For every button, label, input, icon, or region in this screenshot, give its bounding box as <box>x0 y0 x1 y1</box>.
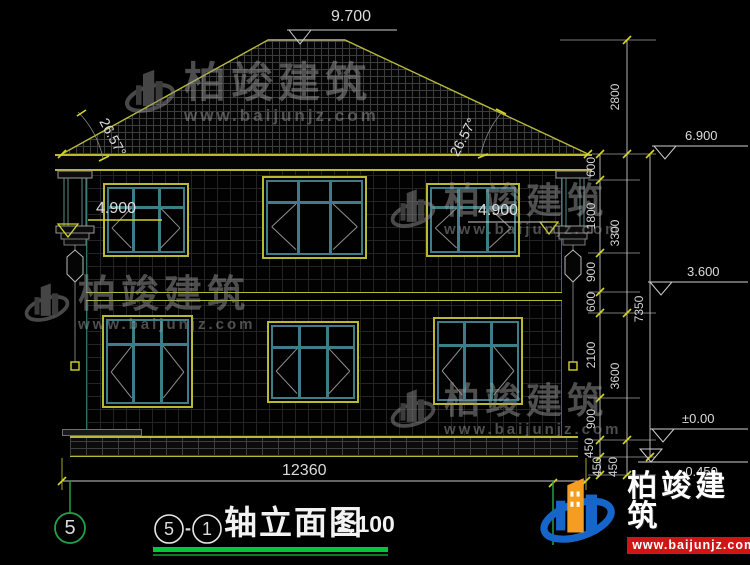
dim-lower-window: 2100 <box>585 342 597 369</box>
watermark-brand: 柏竣建筑 <box>184 62 379 104</box>
watermark-url: www.baijunjz.com <box>78 317 255 332</box>
dim-lower-lintel: 600 <box>585 292 597 312</box>
dim-eave-band: 600 <box>585 157 597 177</box>
brand-logo-icon <box>22 274 72 334</box>
watermark: 柏竣建筑 www.baijunjz.com <box>22 274 255 334</box>
dim-upper-window: 1800 <box>585 203 597 230</box>
brand-logo-icon <box>388 380 438 440</box>
dim-roof-height: 2800 <box>609 84 621 111</box>
dim-total-width: 12360 <box>282 463 327 479</box>
watermark-url: www.baijunjz.com <box>184 107 379 124</box>
level-ridge: 9.700 <box>331 9 371 25</box>
title-scale: 1:100 <box>336 513 395 536</box>
brand-logo-icon <box>536 473 619 553</box>
title-underline <box>153 547 388 552</box>
title-axis-start: 5 <box>164 520 174 538</box>
level-marker-ridge <box>287 30 397 44</box>
dim-second-storey: 3300 <box>609 220 621 247</box>
pendant-ornament-icon <box>565 250 581 282</box>
window-level-left: 4.900 <box>96 201 136 217</box>
title-separator: - <box>185 519 191 537</box>
dim-first-storey: 3600 <box>609 363 621 390</box>
brand-logo-icon <box>122 60 178 126</box>
window-level-right: 4.900 <box>478 203 518 219</box>
footer-url: www.baijunjz.com <box>627 537 750 554</box>
level-eave: 6.900 <box>685 129 718 142</box>
dim-total-height: 7350 <box>633 296 645 323</box>
brand-logo-icon <box>388 180 438 240</box>
dim-lower-sill: 900 <box>585 409 597 429</box>
axis-bubble-left-label: 5 <box>64 518 75 538</box>
dim-upper-sill: 900 <box>585 262 597 282</box>
title-axis-end: 1 <box>202 520 212 538</box>
dim-plinth-upper: 450 <box>583 438 595 458</box>
watermark-brand: 柏竣建筑 <box>78 276 255 314</box>
brand-footer: 柏竣建筑 www.baijunjz.com <box>536 472 750 554</box>
level-second-floor: 3.600 <box>687 265 720 278</box>
level-zero: ±0.00 <box>682 412 714 425</box>
elevation-drawing: 柏竣建筑 www.baijunjz.com 柏竣建筑 www.baijunjz.… <box>0 0 750 565</box>
footer-brand: 柏竣建筑 <box>627 472 750 532</box>
watermark: 柏竣建筑 www.baijunjz.com <box>122 60 379 126</box>
pilaster-left <box>56 171 94 370</box>
